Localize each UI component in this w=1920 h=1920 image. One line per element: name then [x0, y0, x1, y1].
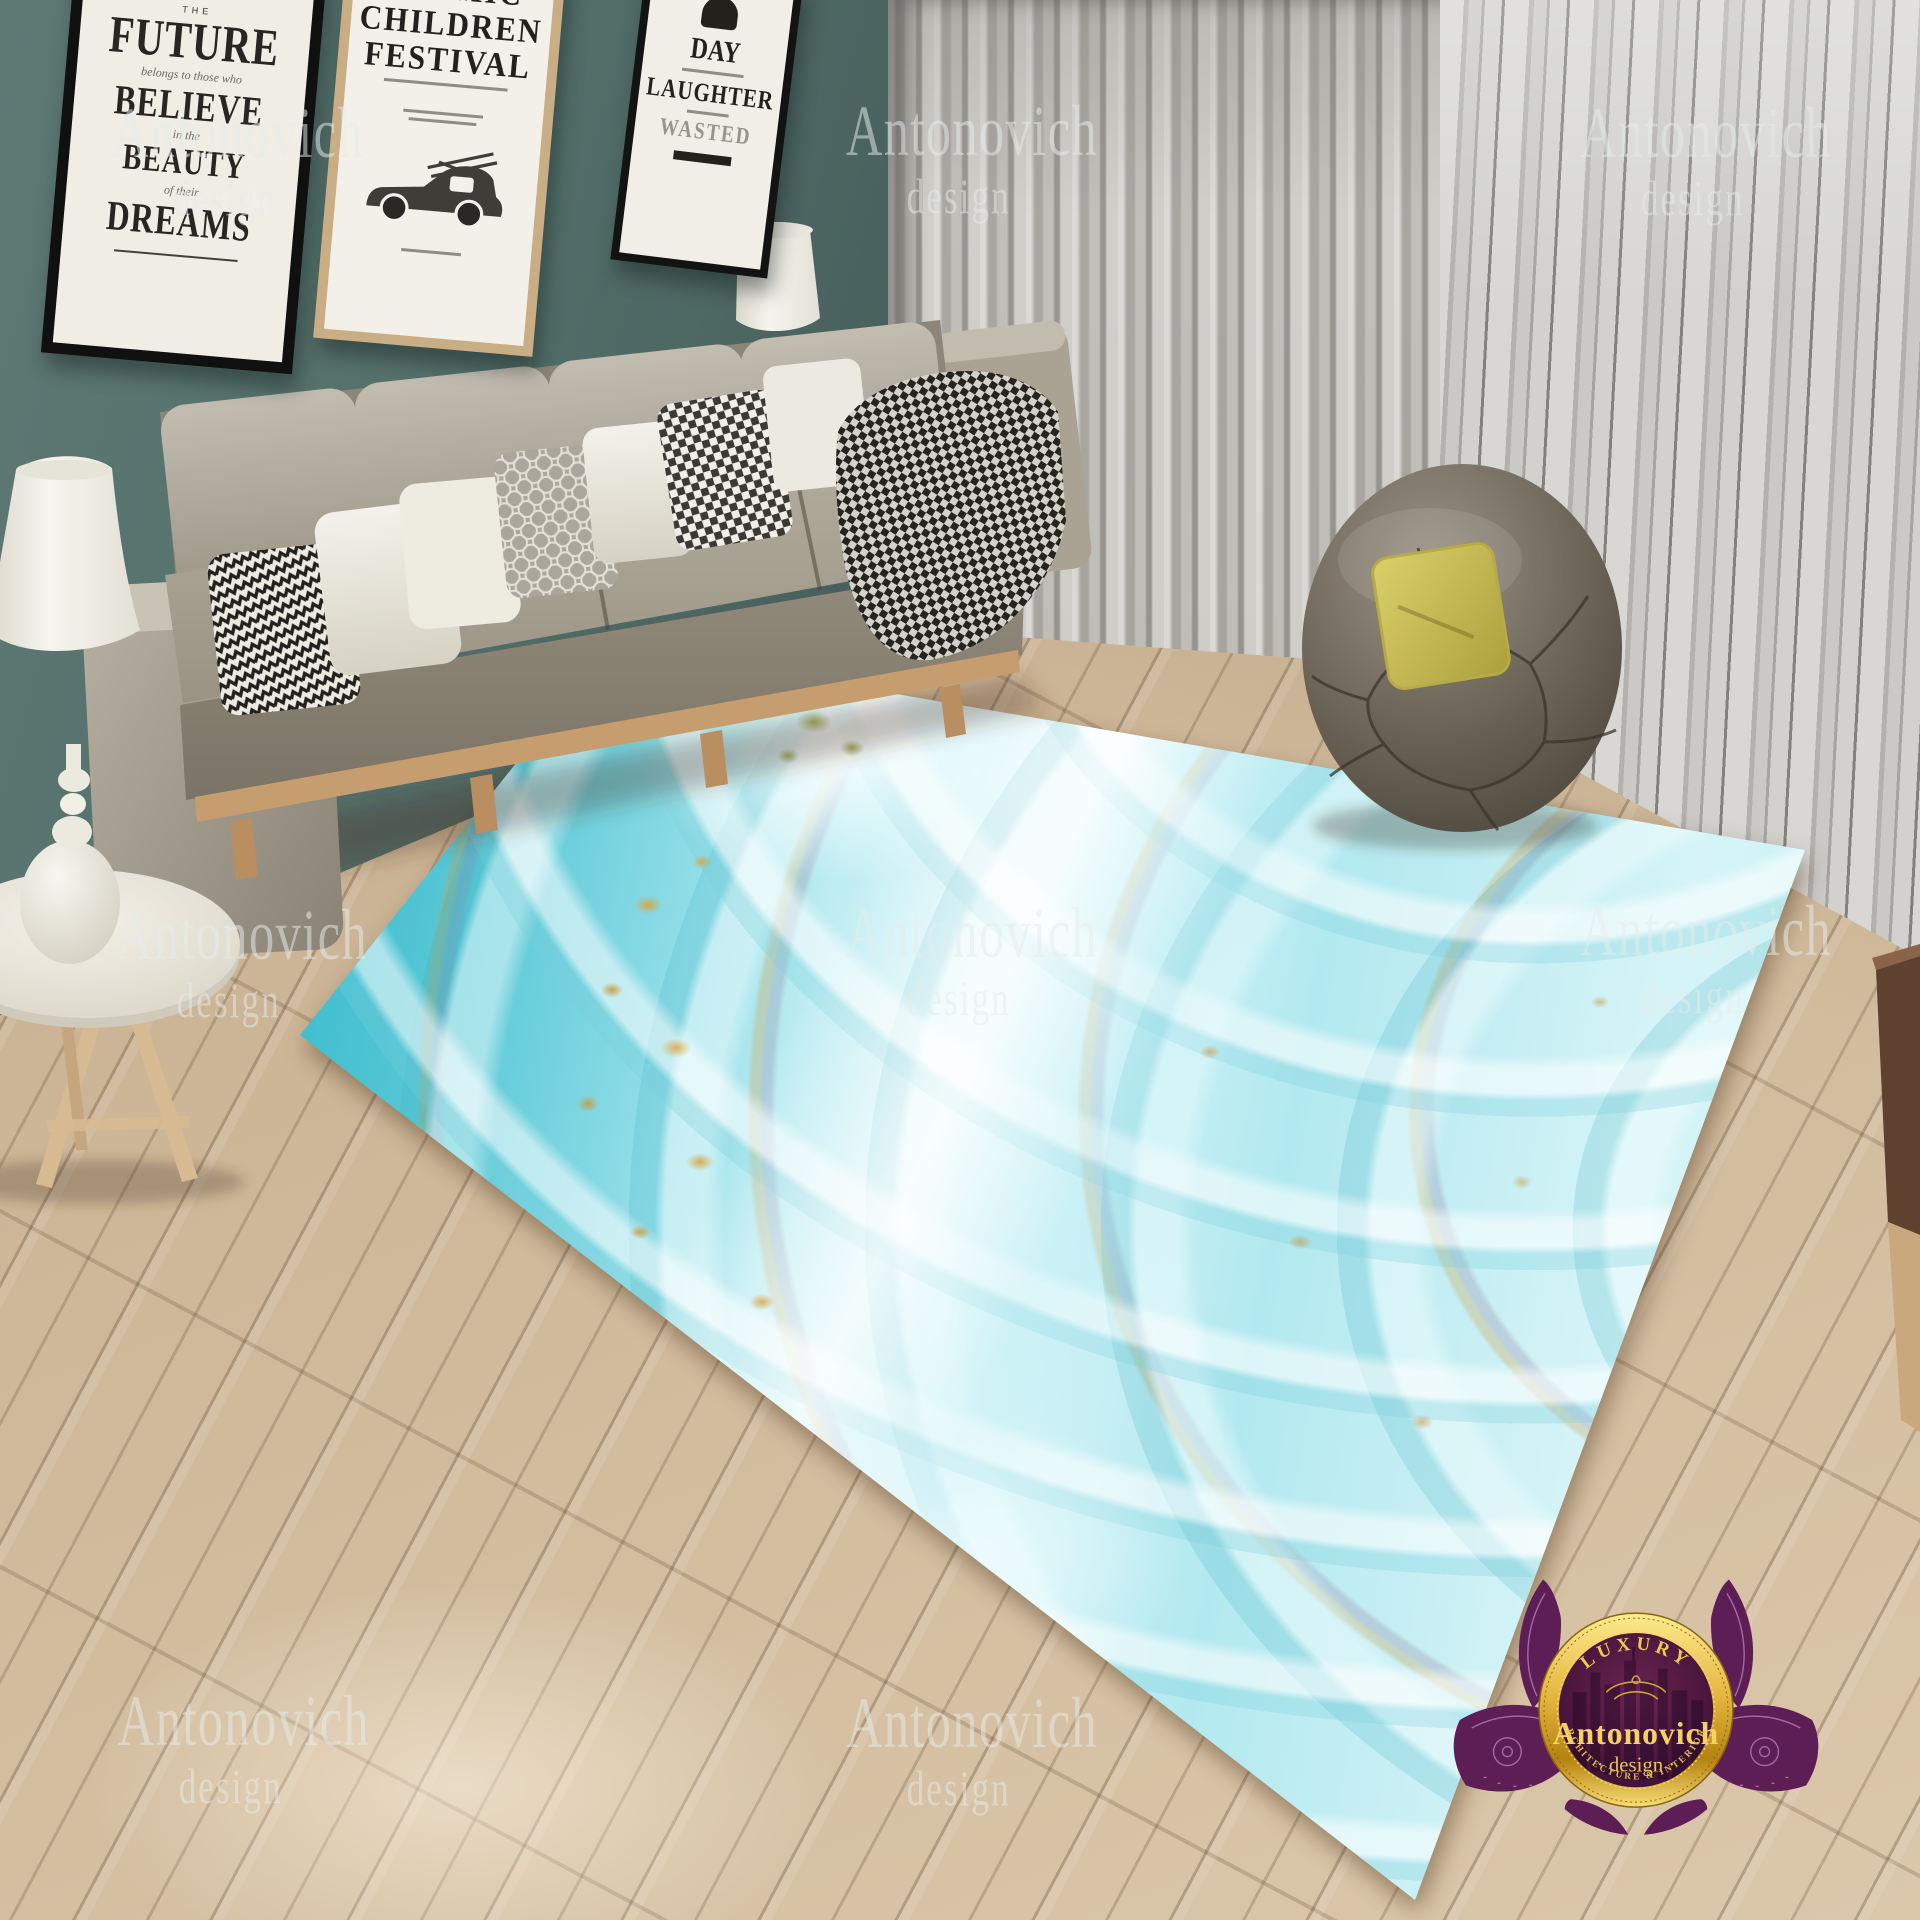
brand-logo: LUXURY Antonovich · design · ARCHITECTUR… [1448, 1572, 1824, 1872]
framed-poster-future-quote: THE FUTURE belongs to those who BELIEVE … [41, 0, 327, 374]
framed-poster-cosmic-festival: COSMIC CHILDREN FESTIVAL [313, 0, 567, 357]
houndstooth-throw [836, 371, 1066, 660]
bean-bag-chair [1302, 464, 1622, 850]
bell-icon [700, 0, 740, 31]
living-room-photo: THE FUTURE belongs to those who BELIEVE … [0, 0, 1920, 1920]
illegible-text-bar [408, 117, 476, 126]
poster-rule [673, 150, 732, 166]
illegible-text-bar [401, 248, 461, 256]
wood-cabinet-edge [1872, 944, 1920, 1432]
yellow-pillow [1370, 541, 1511, 690]
sofa [80, 319, 1093, 961]
vintage-car-illustration [358, 138, 515, 243]
